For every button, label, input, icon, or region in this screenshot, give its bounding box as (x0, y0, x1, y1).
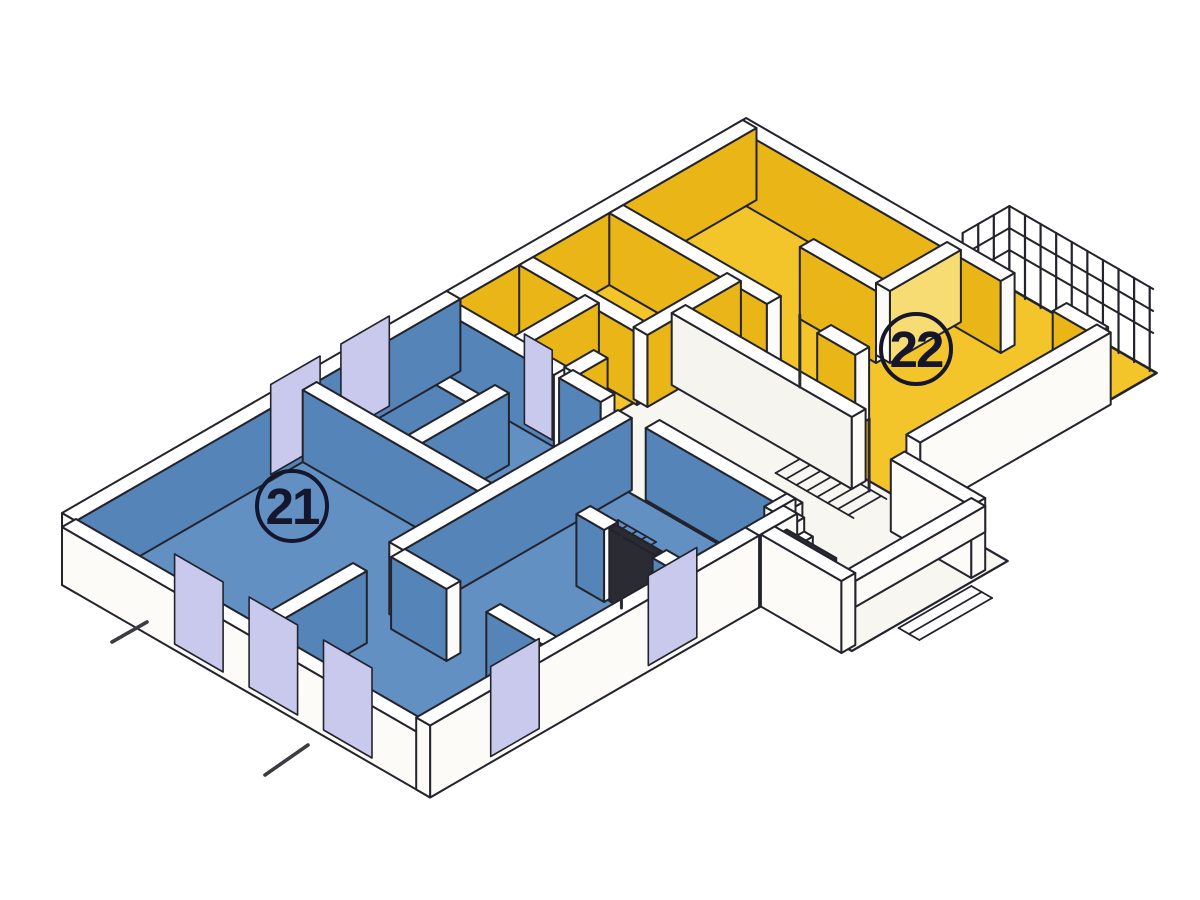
floor-plan-page: 21 22 (0, 0, 1200, 900)
unit-21-badge[interactable]: 21 (255, 469, 329, 543)
axonometric-floor-plan (0, 0, 1200, 900)
walls (62, 118, 1111, 798)
unit-22-badge[interactable]: 22 (879, 312, 953, 386)
